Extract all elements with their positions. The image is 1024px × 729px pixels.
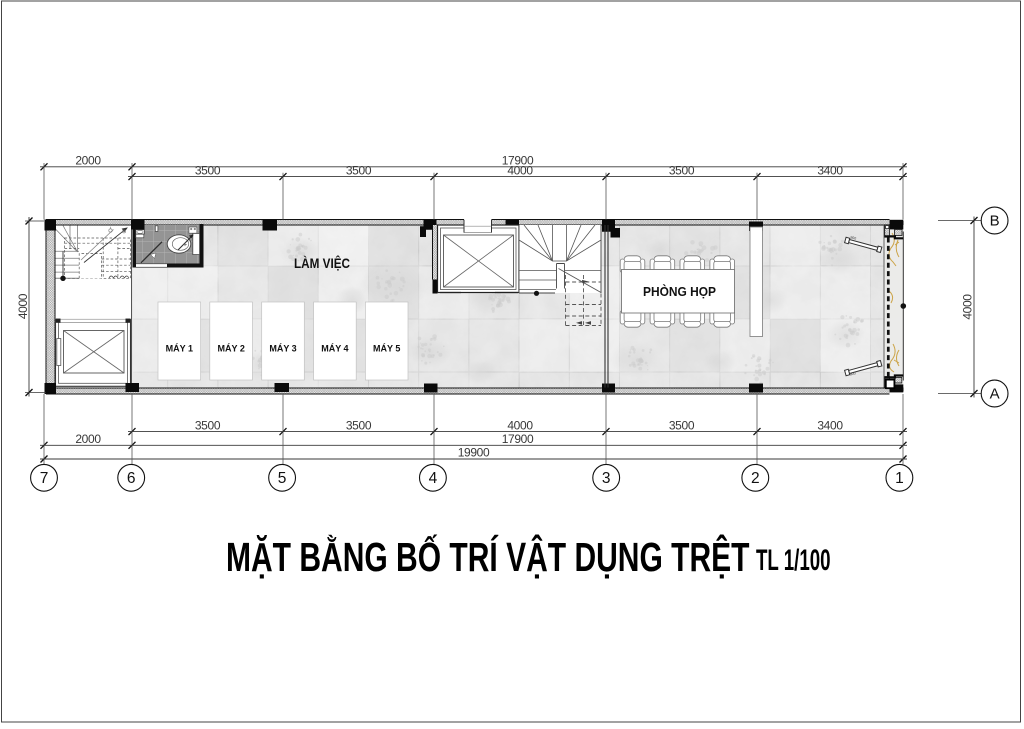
svg-text:A: A: [990, 386, 1000, 403]
svg-text:3400: 3400: [817, 418, 843, 432]
svg-text:MÁY 5: MÁY 5: [373, 344, 400, 354]
svg-text:MÁY 3: MÁY 3: [269, 344, 296, 354]
svg-text:4000: 4000: [507, 418, 533, 432]
svg-text:4: 4: [429, 470, 438, 487]
svg-text:MÁY 4: MÁY 4: [321, 344, 348, 354]
svg-text:B: B: [990, 213, 1000, 230]
svg-text:MÁY 1: MÁY 1: [166, 344, 193, 354]
svg-text:5: 5: [278, 470, 287, 487]
svg-text:4000: 4000: [16, 293, 30, 319]
svg-text:LÀM VIỆC: LÀM VIỆC: [294, 254, 350, 271]
svg-text:MÁY 2: MÁY 2: [218, 344, 245, 354]
svg-text:17900: 17900: [502, 432, 534, 446]
svg-text:6: 6: [127, 470, 136, 487]
svg-text:19900: 19900: [458, 446, 490, 460]
svg-text:3500: 3500: [346, 418, 372, 432]
svg-text:3500: 3500: [346, 163, 372, 177]
svg-text:4000: 4000: [507, 163, 533, 177]
svg-text:3500: 3500: [669, 418, 695, 432]
svg-text:7: 7: [40, 470, 49, 487]
svg-text:3400: 3400: [817, 163, 843, 177]
svg-text:4000: 4000: [960, 294, 974, 320]
svg-text:PHÒNG HỌP: PHÒNG HỌP: [643, 284, 716, 299]
svg-text:3500: 3500: [669, 163, 695, 177]
svg-text:2000: 2000: [75, 432, 101, 446]
svg-text:2: 2: [751, 470, 760, 487]
svg-text:3500: 3500: [195, 163, 221, 177]
svg-text:3500: 3500: [195, 418, 221, 432]
svg-text:1: 1: [895, 470, 904, 487]
svg-text:3: 3: [602, 470, 611, 487]
svg-text:2000: 2000: [75, 153, 101, 167]
